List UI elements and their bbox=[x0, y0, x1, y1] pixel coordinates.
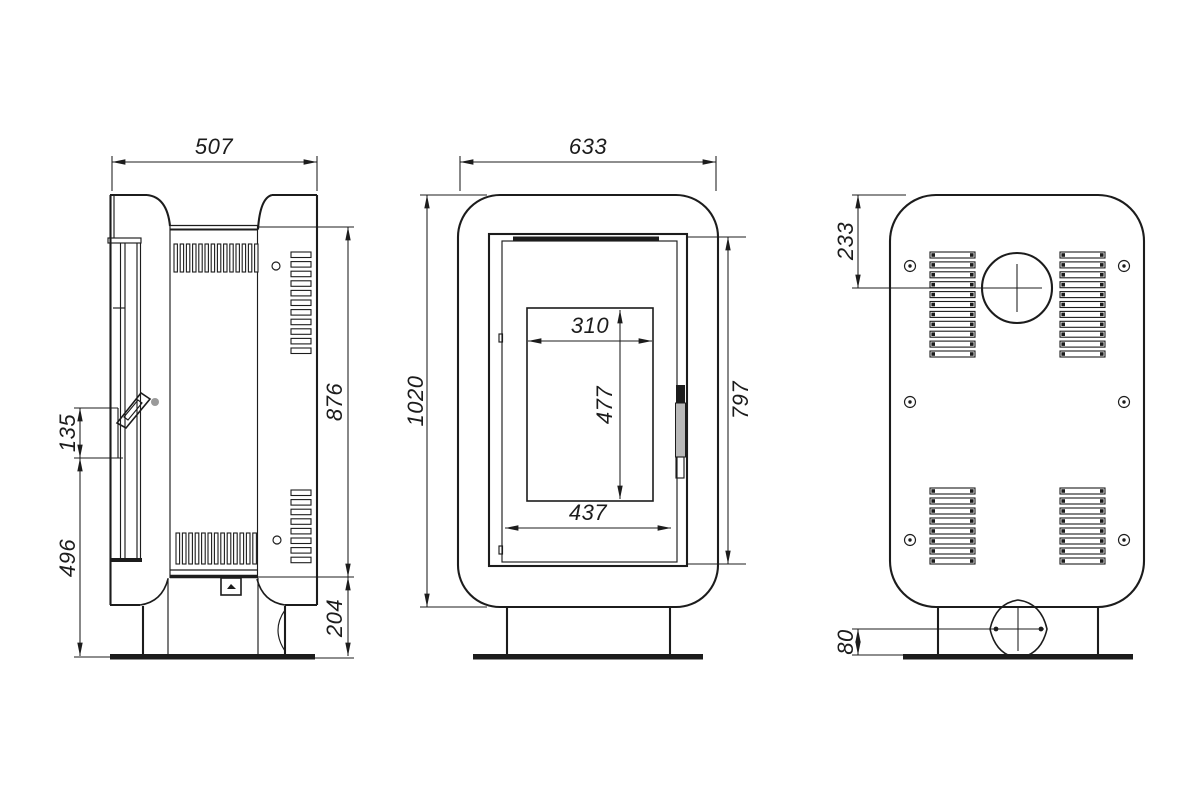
vent-slot-cap bbox=[970, 293, 974, 297]
dim-label-side-depth: 507 bbox=[195, 134, 233, 159]
vent-slot bbox=[291, 490, 311, 496]
vent-slot-cap bbox=[931, 539, 935, 543]
side-rear-lower-vents bbox=[291, 490, 311, 563]
side-fillet-left bbox=[140, 579, 168, 605]
vent-slot-cap bbox=[1061, 263, 1065, 267]
vent-slot bbox=[1060, 538, 1105, 544]
vent-slot bbox=[246, 533, 250, 564]
dim-label-front-glass-height: 477 bbox=[592, 386, 617, 424]
vent-slot-cap bbox=[931, 509, 935, 513]
dim-label-rear-flue-from-top: 233 bbox=[833, 222, 858, 261]
vent-slot bbox=[214, 533, 218, 564]
vent-slot-cap bbox=[1100, 283, 1104, 287]
vent-slot bbox=[234, 533, 238, 564]
vent-slot bbox=[195, 533, 199, 564]
dim-label-front-glass-width: 310 bbox=[571, 313, 609, 338]
vent-slot bbox=[291, 281, 311, 287]
vent-slot-cap bbox=[931, 253, 935, 257]
vent-slot-cap bbox=[1061, 332, 1065, 336]
vent-slot bbox=[291, 500, 311, 506]
vent-slot-cap bbox=[1061, 549, 1065, 553]
vent-slot bbox=[255, 244, 258, 272]
side-top-curve-right bbox=[258, 195, 272, 230]
dim-label-rear-inlet-from-floor: 80 bbox=[833, 629, 858, 655]
vent-slot bbox=[1060, 311, 1105, 317]
vent-slot-cap bbox=[1061, 499, 1065, 503]
side-bottom-vent-slats bbox=[176, 533, 256, 564]
vent-slot-cap bbox=[1061, 253, 1065, 257]
dim-label-side-body-height: 876 bbox=[322, 383, 347, 421]
rear-vents-top-right bbox=[1060, 252, 1105, 357]
vent-slot-cap bbox=[1100, 313, 1104, 317]
vent-slot-cap bbox=[931, 263, 935, 267]
dim-label-side-handle-span: 135 bbox=[55, 414, 80, 452]
vent-slot bbox=[224, 244, 227, 272]
vent-slot bbox=[1060, 292, 1105, 298]
vent-slot bbox=[1060, 528, 1105, 534]
vent-slot bbox=[291, 538, 311, 544]
vent-slot-cap bbox=[931, 332, 935, 336]
rear-screw-centre bbox=[908, 538, 911, 541]
vent-slot bbox=[930, 321, 975, 327]
vent-slot-cap bbox=[1061, 283, 1065, 287]
vent-slot bbox=[189, 533, 193, 564]
side-base-plate bbox=[110, 654, 315, 660]
vent-slot-cap bbox=[1061, 489, 1065, 493]
vent-slot bbox=[291, 348, 311, 354]
vent-slot-cap bbox=[970, 529, 974, 533]
side-screw-top bbox=[272, 262, 280, 270]
vent-slot-cap bbox=[970, 303, 974, 307]
vent-slot bbox=[291, 509, 311, 515]
drawing-page: 507 876 204 135 496 bbox=[0, 0, 1200, 800]
front-dimensions: 633 1020 797 310 477 437 bbox=[403, 134, 753, 607]
vent-slot bbox=[1060, 548, 1105, 554]
vent-slot-cap bbox=[970, 499, 974, 503]
vent-slot bbox=[1060, 518, 1105, 524]
side-screw-bottom bbox=[273, 536, 281, 544]
vent-slot bbox=[291, 557, 311, 563]
vent-slot-cap bbox=[1061, 539, 1065, 543]
vent-slot-cap bbox=[931, 519, 935, 523]
vent-slot bbox=[1060, 321, 1105, 327]
side-dimensions: 507 876 204 135 496 bbox=[55, 134, 354, 658]
vent-slot bbox=[1060, 331, 1105, 337]
vent-slot bbox=[1060, 341, 1105, 347]
front-door-top-strip bbox=[513, 237, 659, 242]
vent-slot-cap bbox=[970, 283, 974, 287]
vent-slot-cap bbox=[1100, 352, 1104, 356]
vent-slot bbox=[205, 244, 208, 272]
vent-slot-cap bbox=[931, 529, 935, 533]
vent-slot bbox=[1060, 351, 1105, 357]
vent-slot bbox=[1060, 558, 1105, 564]
vent-slot bbox=[227, 533, 231, 564]
front-hinge-tick-1 bbox=[499, 334, 503, 342]
front-base-plate bbox=[473, 654, 703, 660]
side-top-curve-left bbox=[147, 195, 170, 226]
vent-slot bbox=[182, 533, 186, 564]
vent-slot-cap bbox=[1061, 519, 1065, 523]
vent-slot-cap bbox=[931, 342, 935, 346]
vent-slot bbox=[291, 300, 311, 306]
vent-slot-cap bbox=[970, 253, 974, 257]
vent-slot-cap bbox=[931, 283, 935, 287]
vent-slot-cap bbox=[931, 559, 935, 563]
rear-screw-centre bbox=[908, 400, 911, 403]
front-handle-latch bbox=[676, 385, 685, 403]
vent-slot-cap bbox=[1100, 273, 1104, 277]
vent-slot bbox=[291, 252, 311, 258]
vent-slot-cap bbox=[1061, 323, 1065, 327]
dim-label-front-overall-height: 1020 bbox=[403, 375, 428, 426]
side-handle-pivot-dot bbox=[151, 398, 159, 406]
vent-slot-cap bbox=[931, 293, 935, 297]
dim-label-side-plinth-height: 204 bbox=[322, 599, 347, 638]
rear-base-plate bbox=[903, 654, 1133, 660]
vent-slot bbox=[1060, 508, 1105, 514]
vent-slot-cap bbox=[931, 323, 935, 327]
front-view: 633 1020 797 310 477 437 bbox=[403, 134, 753, 660]
vent-slot-cap bbox=[931, 499, 935, 503]
vent-slot bbox=[236, 244, 239, 272]
vent-slot-cap bbox=[970, 352, 974, 356]
vent-slot-cap bbox=[931, 549, 935, 553]
side-door-top-ledge bbox=[108, 238, 141, 243]
vent-slot-cap bbox=[970, 549, 974, 553]
side-door-handle-lever bbox=[117, 393, 150, 428]
side-fillet-right bbox=[257, 579, 285, 605]
vent-slot bbox=[291, 519, 311, 525]
dim-label-front-door-height: 797 bbox=[728, 381, 753, 419]
vent-slot bbox=[930, 528, 975, 534]
vent-slot-cap bbox=[1061, 352, 1065, 356]
vent-slot-cap bbox=[1061, 303, 1065, 307]
vent-slot bbox=[199, 244, 202, 272]
vent-slot-cap bbox=[1100, 529, 1104, 533]
vent-slot-cap bbox=[1100, 499, 1104, 503]
vent-slot bbox=[930, 558, 975, 564]
dim-label-side-handle-to-floor: 496 bbox=[55, 539, 80, 577]
vent-slot-cap bbox=[970, 539, 974, 543]
vent-slot-cap bbox=[931, 489, 935, 493]
rear-view: 233 80 bbox=[833, 195, 1144, 660]
vent-slot bbox=[930, 292, 975, 298]
vent-slot bbox=[1060, 262, 1105, 268]
vent-slot bbox=[248, 244, 251, 272]
vent-slot-cap bbox=[1100, 519, 1104, 523]
vent-slot bbox=[291, 338, 311, 344]
vent-slot bbox=[1060, 488, 1105, 494]
vent-slot bbox=[930, 508, 975, 514]
vent-slot bbox=[930, 498, 975, 504]
vent-slot-cap bbox=[1061, 342, 1065, 346]
rear-body bbox=[890, 195, 1144, 607]
vent-slot-cap bbox=[1100, 323, 1104, 327]
vent-slot-cap bbox=[1061, 559, 1065, 563]
vent-slot-cap bbox=[931, 313, 935, 317]
rear-vents-bottom-right bbox=[1060, 488, 1105, 564]
vent-slot-cap bbox=[1100, 342, 1104, 346]
vent-slot-cap bbox=[970, 489, 974, 493]
vent-slot-cap bbox=[1100, 263, 1104, 267]
vent-slot bbox=[291, 262, 311, 268]
rear-vents-top-left bbox=[930, 252, 975, 357]
vent-slot-cap bbox=[1100, 549, 1104, 553]
vent-slot-cap bbox=[970, 332, 974, 336]
vent-slot bbox=[291, 271, 311, 277]
vent-slot bbox=[291, 548, 311, 554]
vent-slot bbox=[242, 244, 245, 272]
vent-slot bbox=[930, 272, 975, 278]
vent-slot bbox=[291, 290, 311, 296]
vent-slot bbox=[211, 244, 214, 272]
vent-slot-cap bbox=[1100, 332, 1104, 336]
vent-slot bbox=[208, 533, 212, 564]
vent-slot bbox=[1060, 282, 1105, 288]
front-hinge-tick-2 bbox=[499, 546, 503, 554]
vent-slot bbox=[1060, 498, 1105, 504]
vent-slot-cap bbox=[970, 559, 974, 563]
side-latch-mark bbox=[227, 584, 236, 589]
stove-technical-drawing: 507 876 204 135 496 bbox=[0, 0, 1200, 800]
vent-slot-cap bbox=[970, 323, 974, 327]
vent-slot-cap bbox=[970, 273, 974, 277]
rear-screw-centre bbox=[1122, 538, 1125, 541]
front-handle-bar bbox=[676, 403, 686, 457]
vent-slot bbox=[193, 244, 196, 272]
vent-slot-cap bbox=[970, 263, 974, 267]
dim-label-front-width: 633 bbox=[569, 134, 607, 159]
vent-slot bbox=[930, 311, 975, 317]
vent-slot bbox=[240, 533, 244, 564]
vent-slot bbox=[176, 533, 180, 564]
vent-slot-cap bbox=[1061, 273, 1065, 277]
vent-slot-cap bbox=[1061, 529, 1065, 533]
rear-vents-bottom-left bbox=[930, 488, 975, 564]
vent-slot-cap bbox=[1061, 509, 1065, 513]
rear-screw-centre bbox=[908, 264, 911, 267]
vent-slot bbox=[174, 244, 177, 272]
vent-slot-cap bbox=[970, 509, 974, 513]
vent-slot-cap bbox=[970, 313, 974, 317]
vent-slot bbox=[230, 244, 233, 272]
side-top-vent-slats bbox=[174, 244, 258, 272]
vent-slot bbox=[217, 244, 220, 272]
vent-slot bbox=[291, 310, 311, 316]
vent-slot-cap bbox=[1100, 293, 1104, 297]
vent-slot bbox=[291, 528, 311, 534]
vent-slot bbox=[930, 538, 975, 544]
vent-slot-cap bbox=[931, 303, 935, 307]
vent-slot-cap bbox=[970, 342, 974, 346]
vent-slot bbox=[186, 244, 189, 272]
vent-slot bbox=[1060, 252, 1105, 258]
vent-slot bbox=[180, 244, 183, 272]
vent-slot bbox=[1060, 272, 1105, 278]
vent-slot-cap bbox=[1100, 509, 1104, 513]
vent-slot bbox=[930, 341, 975, 347]
vent-slot bbox=[930, 262, 975, 268]
vent-slot-cap bbox=[1100, 539, 1104, 543]
vent-slot bbox=[930, 331, 975, 337]
vent-slot bbox=[1060, 302, 1105, 308]
vent-slot-cap bbox=[1100, 559, 1104, 563]
vent-slot bbox=[291, 329, 311, 335]
rear-screw-centre bbox=[1122, 400, 1125, 403]
vent-slot-cap bbox=[1100, 303, 1104, 307]
vent-slot bbox=[930, 518, 975, 524]
side-view: 507 876 204 135 496 bbox=[55, 134, 354, 660]
vent-slot-cap bbox=[931, 352, 935, 356]
rear-screw-centre bbox=[1122, 264, 1125, 267]
vent-slot-cap bbox=[1061, 313, 1065, 317]
vent-slot bbox=[930, 548, 975, 554]
vent-slot bbox=[930, 351, 975, 357]
vent-slot-cap bbox=[1100, 253, 1104, 257]
vent-slot bbox=[930, 282, 975, 288]
vent-slot bbox=[930, 252, 975, 258]
vent-slot-cap bbox=[1061, 293, 1065, 297]
vent-slot bbox=[930, 302, 975, 308]
vent-slot bbox=[930, 488, 975, 494]
vent-slot bbox=[291, 319, 311, 325]
dim-label-front-door-inner-width: 437 bbox=[569, 500, 607, 525]
vent-slot bbox=[221, 533, 225, 564]
vent-slot-cap bbox=[931, 273, 935, 277]
side-rear-upper-vents bbox=[291, 252, 311, 354]
vent-slot bbox=[202, 533, 206, 564]
vent-slot-cap bbox=[970, 519, 974, 523]
vent-slot-cap bbox=[1100, 489, 1104, 493]
vent-slot bbox=[253, 533, 257, 564]
